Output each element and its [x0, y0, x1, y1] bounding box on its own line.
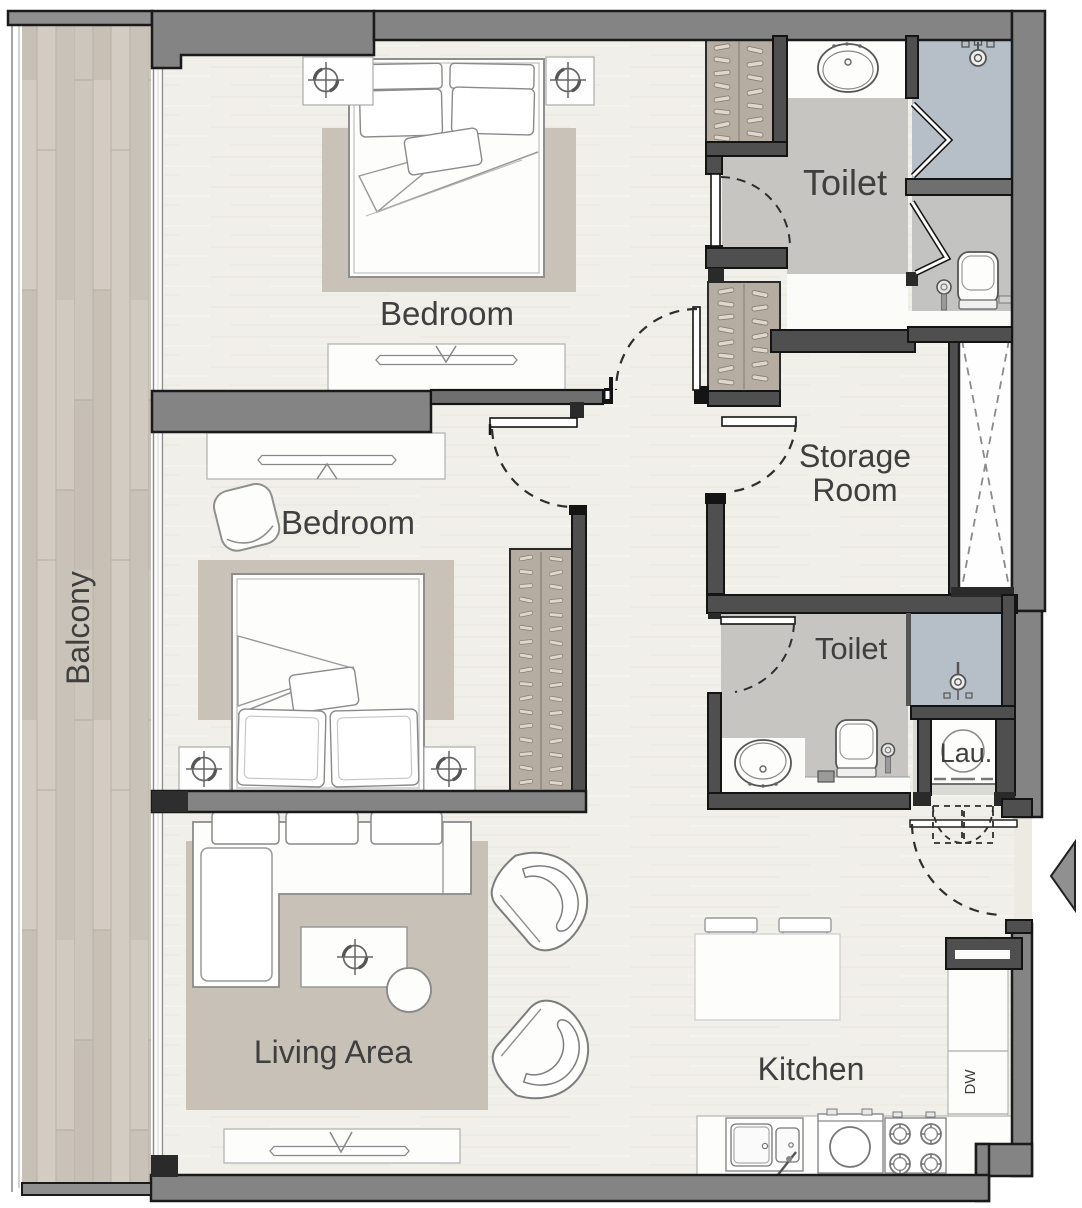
svg-text:Living Area: Living Area [254, 1034, 413, 1070]
svg-text:DW: DW [962, 1069, 979, 1095]
svg-text:Toilet: Toilet [803, 162, 887, 203]
svg-text:Bedroom: Bedroom [281, 504, 415, 541]
svg-text:Toilet: Toilet [815, 631, 888, 666]
svg-text:Balcony: Balcony [60, 571, 96, 685]
svg-text:Storage: Storage [799, 438, 911, 474]
svg-text:Lau.: Lau. [940, 738, 993, 768]
svg-text:Kitchen: Kitchen [758, 1051, 865, 1087]
svg-text:Room: Room [812, 472, 897, 508]
svg-text:Bedroom: Bedroom [380, 295, 514, 332]
